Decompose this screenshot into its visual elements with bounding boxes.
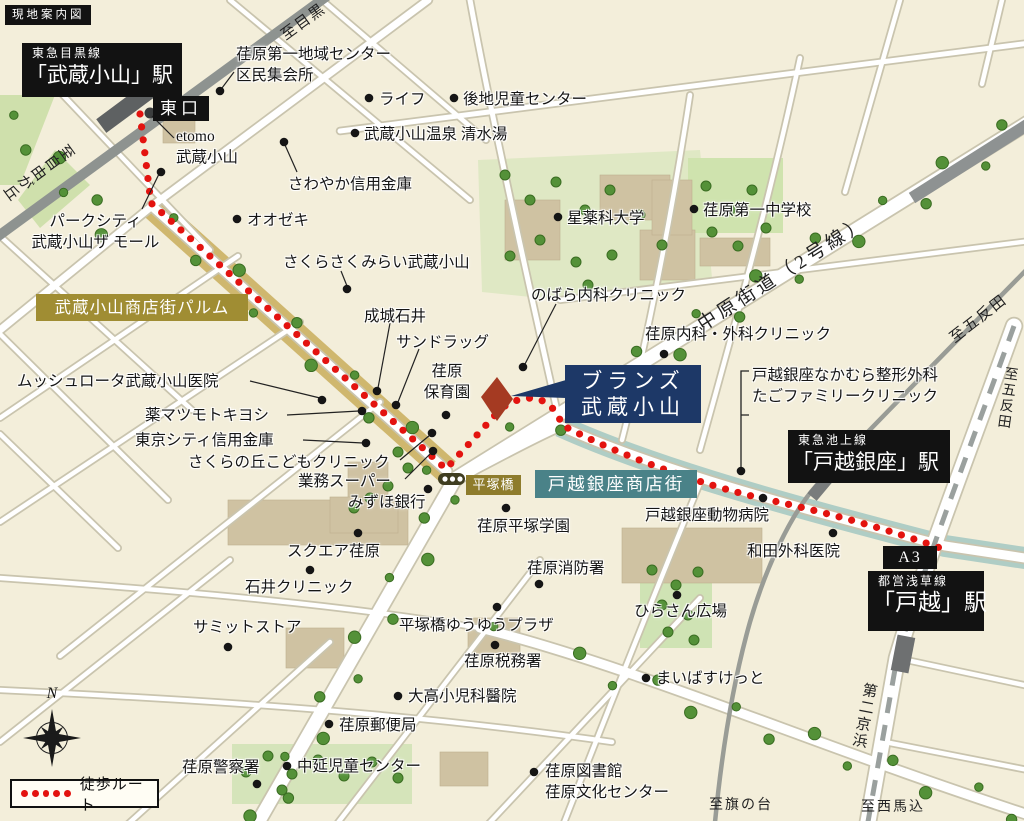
direction-label-1: 至自由が丘	[0, 139, 79, 206]
property-name-line1: ブランズ	[565, 368, 701, 394]
direction-label-5: 第二京浜	[847, 681, 881, 752]
poi-label-nobara: のばら内科クリニック	[531, 285, 686, 306]
poi-label-gochi: 後地児童センター	[463, 89, 587, 110]
station-box-musashikoyama: 東急目黒線 「武蔵小山」駅	[22, 43, 182, 97]
street-banner-togoshiginza: 戸越銀座商店街	[535, 470, 697, 498]
station-line-name: 東急池上線	[798, 434, 950, 447]
direction-label-2: 中原街道（2号線）	[691, 208, 872, 337]
poi-label-toshokan: 荏原図書館 荏原文化センター	[545, 761, 669, 803]
station-name: 「戸越銀座」駅	[792, 449, 950, 475]
station-box-togoshi: 都営浅草線 「戸越」駅	[868, 571, 984, 631]
direction-label-0: 至目黒	[276, 0, 330, 44]
poi-label-maibasuketto: まいばすけっと	[656, 668, 765, 689]
poi-label-yuyuplaza: 平塚橋ゆうゆうプラザ	[399, 615, 554, 636]
poi-label-ishii: 石井クリニック	[245, 577, 354, 598]
poi-label-mussyu: ムッシュロータ武蔵小山医院	[17, 371, 219, 392]
legend-walk-route: 徒歩ルート	[10, 779, 159, 808]
poi-label-sakurasaku: さくらさくみらい武蔵小山	[283, 252, 470, 273]
poi-label-sundrug: サンドラッグ	[396, 332, 489, 353]
route-dot-icon	[64, 790, 71, 797]
site-guide-map: 荏原第一地域センター 区民集会所ライフ後地児童センター武蔵小山温泉 清水湯eto…	[0, 0, 1024, 821]
poi-label-ebara1center: 荏原第一地域センター 区民集会所	[236, 44, 391, 86]
legend-label: 徒歩ルート	[80, 773, 157, 815]
route-dot-icon	[53, 790, 60, 797]
station-box-togoshiginza: 東急池上線 「戸越銀座」駅	[788, 430, 950, 483]
poi-label-nakanobu: 中延児童センター	[297, 756, 421, 777]
station-name: 「武蔵小山」駅	[26, 62, 182, 88]
street-banner-hiratsukabashi: 平塚橋	[466, 475, 521, 495]
poi-label-oozeki: オオゼキ	[247, 210, 309, 231]
street-banner-palm: 武蔵小山商店街パルム	[36, 294, 248, 321]
poi-label-ebaranaika: 荏原内科・外科クリニック	[645, 324, 831, 345]
route-dot-icon	[21, 790, 28, 797]
poi-label-wada: 和田外科医院	[747, 541, 840, 562]
poi-label-ebara1chu: 荏原第一中学校	[703, 200, 812, 221]
poi-label-seijoishii: 成城石井	[364, 306, 426, 327]
map-title: 現地案内図	[5, 5, 91, 25]
property-label-box: ブランズ 武蔵小山	[565, 365, 701, 423]
station-exit-a3: A3	[883, 546, 937, 569]
poi-label-keisatsu: 荏原警察署	[182, 757, 260, 778]
poi-label-hiratsukagakuen: 荏原平塚学園	[477, 516, 570, 537]
poi-label-gyomu: 業務スーパー	[298, 471, 391, 492]
direction-label-7: 至旗の台	[709, 794, 773, 814]
poi-label-hirasan: ひらさん広場	[634, 601, 727, 622]
poi-label-nakamura: 戸越銀座なかむら整形外科 たごファミリークリニック	[752, 365, 938, 407]
direction-label-3: 至五反田	[945, 289, 1012, 347]
poi-label-parkcity: パークシティ 武蔵小山ザ モール	[8, 211, 183, 253]
poi-label-tokyocity: 東京シティ信用金庫	[135, 430, 274, 451]
poi-label-summit: サミットストア	[193, 617, 302, 638]
poi-label-onsen: 武蔵小山温泉 清水湯	[364, 124, 507, 145]
station-name: 「戸越」駅	[872, 590, 984, 616]
station-line-name: 東急目黒線	[32, 47, 182, 60]
poi-label-squareebara: スクエア荏原	[287, 541, 380, 562]
poi-label-otaka: 大高小児科醫院	[408, 686, 517, 707]
poi-label-zeimusho: 荏原税務署	[464, 651, 542, 672]
station-line-name: 都営浅草線	[878, 575, 984, 588]
poi-label-life: ライフ	[379, 89, 426, 110]
poi-label-shobosho: 荏原消防署	[527, 558, 605, 579]
route-dot-icon	[32, 790, 39, 797]
poi-label-etomo: etomo 武蔵小山	[176, 126, 238, 168]
poi-label-sawayaka: さわやか信用金庫	[288, 174, 412, 195]
direction-label-4: 至五反田	[992, 365, 1021, 431]
poi-label-hoshiyakka: 星薬科大学	[567, 208, 645, 229]
poi-label-yubin: 荏原郵便局	[339, 715, 417, 736]
route-dot-icon	[43, 790, 50, 797]
poi-label-hoikuen: 荏原 保育園	[412, 361, 482, 403]
property-name-line2: 武蔵小山	[565, 394, 701, 420]
map-labels-layer: 荏原第一地域センター 区民集会所ライフ後地児童センター武蔵小山温泉 清水湯eto…	[0, 0, 1024, 821]
direction-label-6: 至西馬込	[861, 796, 925, 816]
poi-label-matsukiyo: 薬マツモトキヨシ	[145, 405, 269, 426]
poi-label-doubutsu: 戸越銀座動物病院	[645, 505, 769, 526]
station-exit-east: 東口	[153, 96, 209, 121]
poi-label-sakuranooka: さくらの丘こどもクリニック	[188, 452, 390, 473]
poi-label-mizuho: みずほ銀行	[348, 492, 426, 513]
compass-north-label: N	[47, 685, 58, 703]
